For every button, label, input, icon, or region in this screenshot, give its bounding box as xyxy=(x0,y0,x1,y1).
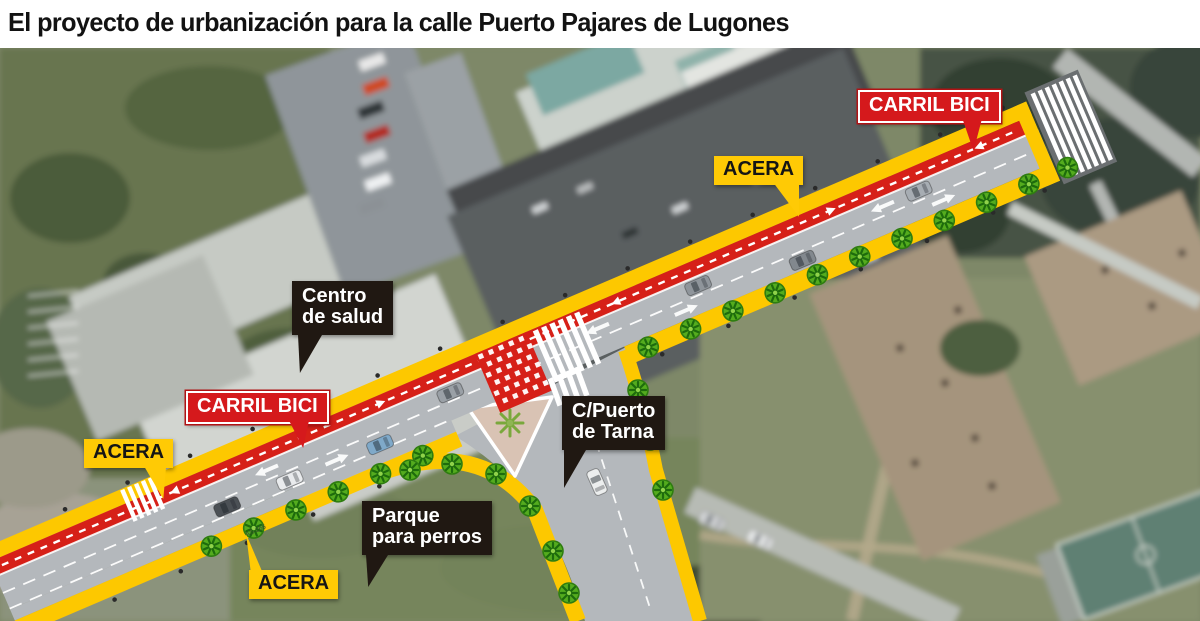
label-text-line1: Parque xyxy=(372,506,482,527)
label-text-line1: C/Puerto xyxy=(572,401,655,422)
tree-icon xyxy=(442,454,462,474)
label-parque-para-perros: Parque para perros xyxy=(362,501,492,555)
tree-icon xyxy=(486,464,506,484)
tree-icon xyxy=(400,460,420,480)
aerial-map: AS-266 xyxy=(0,48,1200,621)
label-acera-bottom: ACERA xyxy=(249,570,338,599)
label-centro-de-salud: Centro de salud xyxy=(292,281,393,335)
label-text: CARRIL BICI xyxy=(197,396,318,417)
tree-icon xyxy=(543,541,563,561)
label-puerto-de-tarna: C/Puerto de Tarna xyxy=(562,396,665,450)
label-text: ACERA xyxy=(723,159,794,180)
label-text-line2: de salud xyxy=(302,307,383,328)
infographic: El proyecto de urbanización para la call… xyxy=(0,0,1200,621)
label-text-line1: Centro xyxy=(302,286,383,307)
title-bar: El proyecto de urbanización para la call… xyxy=(0,0,1200,48)
tree-icon xyxy=(653,480,673,500)
label-text-line2: de Tarna xyxy=(572,422,655,443)
label-text: ACERA xyxy=(93,442,164,463)
label-text: CARRIL BICI xyxy=(869,95,990,116)
label-carril-bici-top: CARRIL BICI xyxy=(858,90,1001,123)
tree-icon xyxy=(520,496,540,516)
label-carril-bici-left: CARRIL BICI xyxy=(186,391,329,424)
tree-icon xyxy=(559,583,579,603)
label-acera-top: ACERA xyxy=(714,156,803,185)
label-text-line2: para perros xyxy=(372,527,482,548)
island-palm-icon xyxy=(497,410,523,436)
page-title: El proyecto de urbanización para la call… xyxy=(8,7,789,38)
label-text: ACERA xyxy=(258,573,329,594)
label-acera-left: ACERA xyxy=(84,439,173,468)
